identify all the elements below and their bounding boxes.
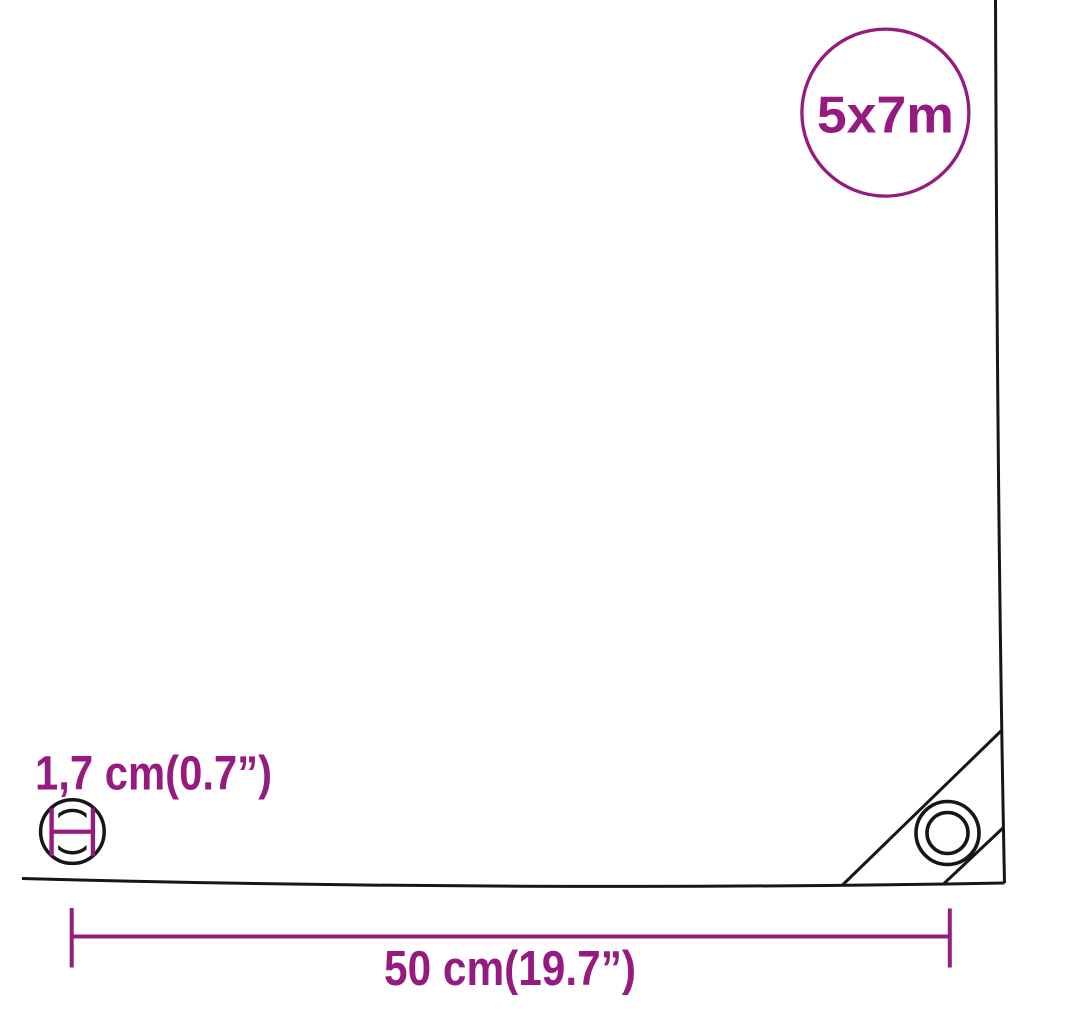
svg-text:5x7m: 5x7m	[817, 86, 954, 144]
svg-text:1,7 cm(0.7”): 1,7 cm(0.7”)	[35, 746, 272, 800]
svg-text:50 cm(19.7”): 50 cm(19.7”)	[384, 942, 636, 996]
